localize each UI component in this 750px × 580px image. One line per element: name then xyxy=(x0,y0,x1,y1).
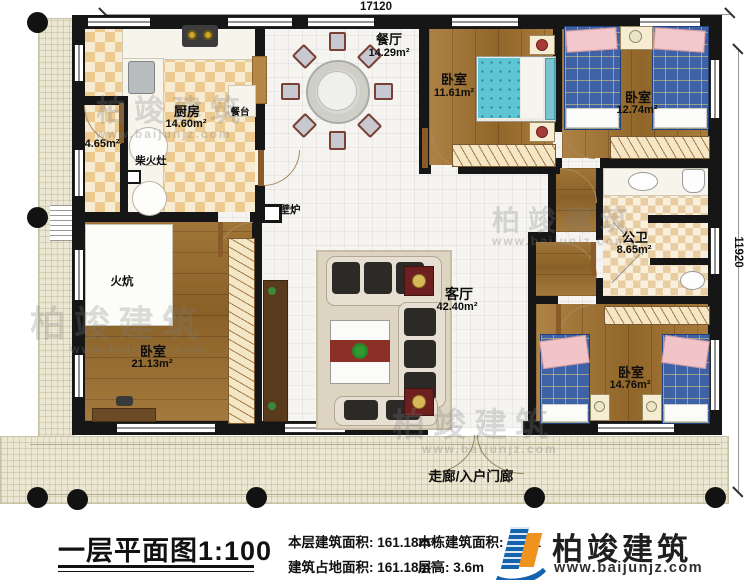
right-dimension-label: 11920 xyxy=(732,222,744,282)
window xyxy=(117,423,215,433)
sofa-cushion xyxy=(404,308,436,336)
room-area-bedroom-br: 14.76m² xyxy=(610,380,651,391)
porch-column xyxy=(27,12,48,33)
window xyxy=(74,45,83,81)
porch-column xyxy=(67,489,88,510)
wardrobe xyxy=(228,238,255,424)
stove-box xyxy=(126,170,141,184)
watermark-url: www.baijunjz.com xyxy=(392,443,558,456)
window xyxy=(74,150,83,196)
window xyxy=(228,17,292,27)
watermark-url: www.baijunjz.com xyxy=(30,343,206,356)
plant-icon xyxy=(268,402,276,410)
porch-column xyxy=(705,487,726,508)
desk-chair xyxy=(116,396,133,406)
bathroom-sink xyxy=(628,172,658,191)
stat-storey-height: 层高: 3.6m xyxy=(418,556,484,576)
wall-bathroom-west xyxy=(596,278,603,296)
watermark-url: www.baijunjz.com xyxy=(492,235,636,248)
bed-blanket xyxy=(661,335,709,369)
wok-circle xyxy=(132,181,167,216)
window xyxy=(74,355,83,397)
bed-fold xyxy=(664,404,708,422)
porch-column xyxy=(246,487,267,508)
lamp-icon xyxy=(629,30,642,43)
wardrobe xyxy=(604,306,710,325)
door-leaf xyxy=(422,128,428,168)
sofa-cushion xyxy=(404,340,436,368)
watermark-text: 柏竣建筑 xyxy=(30,305,206,343)
label-wood-stove: 柴火灶 xyxy=(135,156,167,167)
watermark: 柏竣建筑 www.baijunjz.com xyxy=(392,408,558,455)
wardrobe xyxy=(610,136,710,159)
logo-swoosh xyxy=(485,541,553,580)
porch-column xyxy=(27,487,48,508)
room-label-bedroom-tl: 卧室 xyxy=(441,73,467,86)
toilet xyxy=(682,169,705,193)
dining-chair xyxy=(281,83,300,100)
sofa-cushion xyxy=(332,262,360,294)
door-leaf xyxy=(218,222,223,257)
porch-line xyxy=(30,494,727,495)
wall-bathroom-divider xyxy=(650,258,708,265)
room-area-bedroom-bl: 21.13m² xyxy=(132,359,173,370)
door-leaf xyxy=(258,150,264,186)
room-area-kitchen: 14.60m² xyxy=(166,119,207,130)
window xyxy=(452,17,518,27)
bed-pillow xyxy=(565,27,617,53)
stat-label: 本层建筑面积: xyxy=(288,535,374,550)
room-area-living: 42.40m² xyxy=(437,302,478,313)
label-kang: 火炕 xyxy=(111,277,134,289)
dining-chair xyxy=(329,32,346,51)
watermark-text: 柏竣建筑 xyxy=(492,206,636,235)
nightstand-decor xyxy=(536,126,548,138)
wall-bedroom-br-north xyxy=(596,296,708,304)
room-label-bedroom-bl: 卧室 xyxy=(140,345,166,358)
kitchen-sink xyxy=(128,61,155,94)
stat-floor-area: 本层建筑面积: 161.18m² xyxy=(288,531,435,551)
room-label-dining: 餐厅 xyxy=(376,33,402,46)
room-label-living: 客厅 xyxy=(445,287,473,301)
top-dimension-label: 17120 xyxy=(360,1,392,13)
floor-plan-page: 17120 11920 xyxy=(0,0,750,580)
toilet xyxy=(680,271,705,290)
title-underline xyxy=(58,565,254,568)
cooktop-burner xyxy=(187,30,197,40)
room-area-bedroom-tr: 12.74m² xyxy=(617,105,658,116)
sofa-cushion xyxy=(364,262,392,294)
brand-logo-icon xyxy=(488,522,548,578)
room-area-storage: 4.65m² xyxy=(85,139,120,150)
nightstand-decor xyxy=(646,401,657,412)
stat-label: 层高: xyxy=(418,560,450,575)
label-fireplace: 壁炉 xyxy=(280,205,301,216)
room-area-dining: 14.29m² xyxy=(369,48,410,59)
wall-bedroom-tr-south xyxy=(600,158,708,168)
dining-chair xyxy=(329,131,346,150)
title-underline xyxy=(58,571,254,572)
wall-bedroom-br-north xyxy=(536,296,558,304)
stat-value: 3.6m xyxy=(453,560,484,575)
room-area-bedroom-tl: 11.61m² xyxy=(434,88,474,99)
porch-line xyxy=(30,444,720,445)
plant-icon xyxy=(268,287,276,295)
side-table-decor xyxy=(412,274,426,288)
brand-logo-url: www.baijunjz.com xyxy=(554,560,703,576)
nightstand-decor xyxy=(536,39,548,51)
window xyxy=(710,228,720,274)
room-label-kitchen: 厨房 xyxy=(174,105,200,118)
label-porch: 走廊/入户门廊 xyxy=(429,470,514,484)
watermark: 柏竣建筑 www.baijunjz.com xyxy=(492,206,636,248)
dining-chair xyxy=(374,83,393,100)
plan-title: 一层平面图1:100 xyxy=(58,529,272,568)
plant-icon xyxy=(352,343,368,359)
bed-pillow xyxy=(521,58,543,118)
dimension-tick xyxy=(724,7,735,18)
porch-column xyxy=(27,207,48,228)
tv-cabinet xyxy=(263,280,288,422)
window xyxy=(598,423,674,433)
wall-bathroom-divider xyxy=(648,215,708,223)
porch-column xyxy=(524,487,545,508)
window xyxy=(74,250,83,300)
bed-fold xyxy=(566,108,619,128)
window xyxy=(710,340,720,410)
room-area-bathroom: 8.65m² xyxy=(617,245,652,256)
nightstand-decor xyxy=(594,401,605,412)
watermark-text: 柏竣建筑 xyxy=(392,408,558,443)
watermark: 柏竣建筑 www.baijunjz.com xyxy=(30,305,206,355)
bed-mattress xyxy=(478,58,520,118)
dining-table-top xyxy=(317,71,357,111)
cooktop-burner xyxy=(203,30,213,40)
desk xyxy=(92,408,156,422)
window xyxy=(88,17,150,27)
stat-label: 建筑占地面积: xyxy=(288,560,374,575)
room-label-bedroom-br: 卧室 xyxy=(618,366,644,379)
wall-bedroom-br-west xyxy=(528,242,536,421)
wardrobe xyxy=(452,144,556,167)
room-label-bedroom-tr: 卧室 xyxy=(625,91,651,104)
window xyxy=(710,60,720,118)
porch-steps xyxy=(50,205,72,241)
bed-headboard xyxy=(545,58,555,120)
room-label-bathroom: 公卫 xyxy=(622,231,648,244)
bed-pillow xyxy=(653,27,705,53)
stat-footprint-area: 建筑占地面积: 161.18m² xyxy=(288,556,435,576)
label-counter: 餐台 xyxy=(230,108,249,118)
window xyxy=(308,17,374,27)
bed-fold xyxy=(654,108,707,128)
door-leaf xyxy=(556,304,561,338)
sofa-cushion xyxy=(344,400,378,420)
